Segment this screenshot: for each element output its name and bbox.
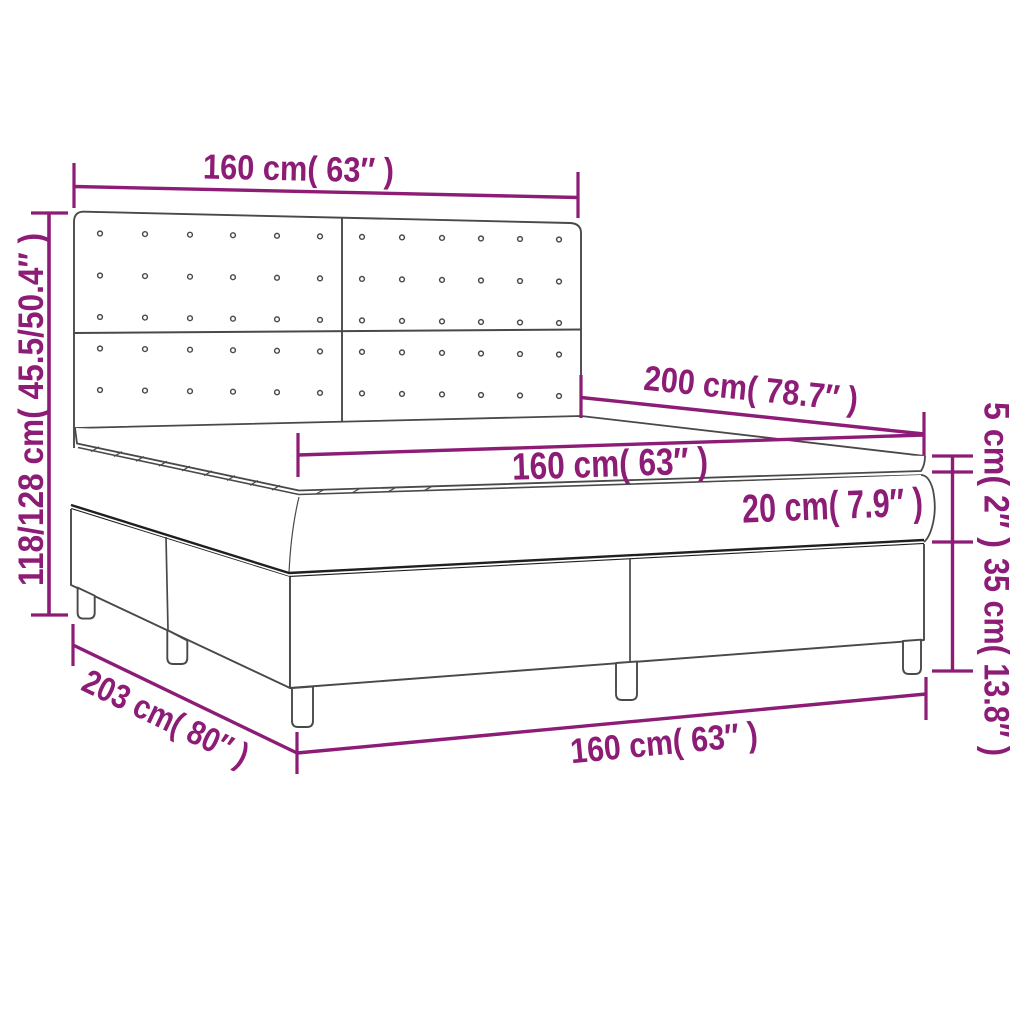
svg-text:20 cm( 7.9″ ): 20 cm( 7.9″ )	[741, 480, 924, 531]
svg-text:5 cm( 2″ ): 5 cm( 2″ )	[977, 402, 1016, 548]
svg-text:200 cm( 78.7″ ): 200 cm( 78.7″ )	[642, 359, 860, 420]
svg-text:118/128 cm( 45.5/50.4″ ): 118/128 cm( 45.5/50.4″ )	[12, 233, 51, 586]
svg-text:160 cm( 63″ ): 160 cm( 63″ )	[203, 148, 395, 191]
svg-text:160 cm( 63″ ): 160 cm( 63″ )	[511, 440, 708, 488]
svg-text:35 cm( 13.8″ ): 35 cm( 13.8″ )	[977, 558, 1016, 756]
